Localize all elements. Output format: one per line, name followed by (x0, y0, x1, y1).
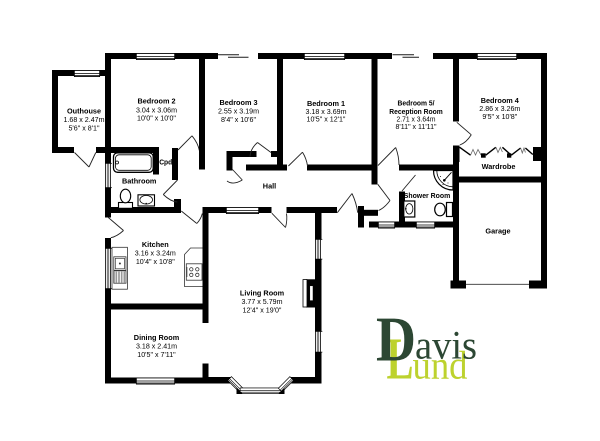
svg-text:D: D (376, 304, 416, 375)
svg-text:5'6" x 8'1": 5'6" x 8'1" (68, 125, 99, 133)
svg-text:1.68 x 2.47m: 1.68 x 2.47m (63, 116, 104, 124)
svg-text:10'0" x 10'0": 10'0" x 10'0" (137, 115, 176, 123)
svg-text:Outhouse: Outhouse (67, 107, 101, 116)
svg-text:8'4" x 10'6": 8'4" x 10'6" (221, 116, 256, 124)
svg-text:10'4" x 10'8": 10'4" x 10'8" (136, 258, 175, 266)
svg-text:Bedroom 2: Bedroom 2 (137, 96, 175, 105)
svg-text:10'5" x 12'1": 10'5" x 12'1" (307, 116, 346, 124)
svg-text:3.77 x 5.79m: 3.77 x 5.79m (241, 298, 282, 306)
svg-text:Dining Room: Dining Room (134, 333, 180, 342)
svg-text:Cpd: Cpd (159, 158, 172, 167)
svg-text:Bedroom 4: Bedroom 4 (481, 96, 520, 105)
svg-text:Bathroom: Bathroom (122, 177, 157, 186)
svg-text:Bedroom 1: Bedroom 1 (307, 99, 345, 108)
svg-text:Hall: Hall (263, 181, 276, 190)
svg-text:Living Room: Living Room (240, 289, 285, 298)
svg-text:avis: avis (415, 323, 477, 368)
svg-text:8'11" x 11'11": 8'11" x 11'11" (396, 123, 437, 131)
svg-text:Wardrobe: Wardrobe (482, 162, 516, 171)
svg-text:Kitchen: Kitchen (142, 240, 169, 249)
svg-text:Shower Room: Shower Room (404, 191, 451, 200)
svg-text:3.18 x 2.41m: 3.18 x 2.41m (136, 343, 177, 351)
svg-text:3.04 x 3.06m: 3.04 x 3.06m (136, 107, 177, 115)
svg-text:Garage: Garage (485, 226, 510, 235)
svg-text:10'5" x 7'11": 10'5" x 7'11" (137, 351, 176, 359)
svg-text:3.16 x 3.24m: 3.16 x 3.24m (135, 250, 176, 258)
svg-text:Bedroom 3: Bedroom 3 (219, 98, 257, 107)
svg-text:12'4" x 19'0": 12'4" x 19'0" (243, 307, 282, 315)
svg-text:2.55 x 3.19m: 2.55 x 3.19m (218, 108, 259, 116)
svg-text:9'5" x 10'8": 9'5" x 10'8" (482, 113, 517, 121)
